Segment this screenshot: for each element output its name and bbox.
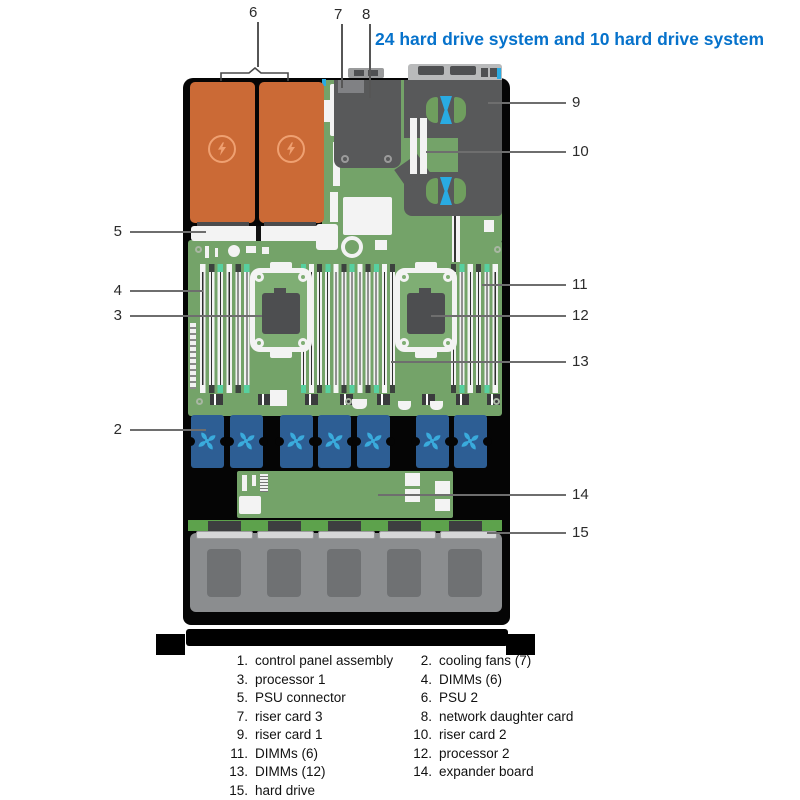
legend-item: 5.PSU connector <box>224 690 346 705</box>
board-connector <box>430 401 443 410</box>
legend-label: processor 1 <box>255 672 326 687</box>
callout-line <box>431 315 566 317</box>
legend-item: 6.PSU 2 <box>406 690 478 705</box>
legend-item: 13.DIMMs (12) <box>224 764 326 779</box>
riser-2-slot <box>420 118 427 174</box>
hard-drive-handle <box>196 531 253 539</box>
board-bit <box>215 248 218 257</box>
legend-label: network daughter card <box>439 709 573 724</box>
callout-line <box>488 102 566 104</box>
board-screw <box>196 398 203 405</box>
legend-item: 1.control panel assembly <box>224 653 393 668</box>
callout-5-psu-connector: 5 <box>94 223 122 240</box>
cooling-fan <box>318 415 351 468</box>
callout-line <box>130 231 206 233</box>
callout-10-riser2: 10 <box>572 143 589 160</box>
expander-bit <box>260 474 268 492</box>
callout-line <box>391 361 566 363</box>
legend-num: 5. <box>224 690 248 705</box>
board-connector <box>484 220 494 232</box>
riser-3-guide <box>330 192 338 222</box>
callout-6-bracket <box>220 67 290 82</box>
psu-2 <box>259 82 324 223</box>
fan-blades-icon <box>321 428 347 454</box>
callout-9-riser1: 9 <box>572 94 580 111</box>
processor-2 <box>407 293 445 334</box>
legend-num: 11. <box>224 746 248 761</box>
callout-6-psu2: 6 <box>249 4 257 21</box>
fan-blades-icon <box>233 428 259 454</box>
callout-7-riser3: 7 <box>334 6 342 23</box>
diagram-page: 24 hard drive system and 10 hard drive s… <box>0 0 800 800</box>
board-screw <box>345 398 352 405</box>
legend-label: PSU connector <box>255 690 346 705</box>
legend-item: 12.processor 2 <box>406 746 510 761</box>
callout-line <box>257 22 259 67</box>
riser-connector <box>426 178 438 204</box>
fan-blades-icon <box>419 428 445 454</box>
legend-item: 8.network daughter card <box>406 709 573 724</box>
fan-blades-icon <box>283 428 309 454</box>
fan-blades-icon <box>457 428 483 454</box>
fan-blades-icon <box>194 428 220 454</box>
callout-line <box>341 24 343 88</box>
fan-blades-icon <box>360 428 386 454</box>
expander-bit <box>435 499 450 511</box>
legend-num: 10. <box>406 727 432 742</box>
legend-num: 9. <box>224 727 248 742</box>
callout-line <box>426 151 566 153</box>
serial-port <box>450 66 476 75</box>
callout-line <box>487 532 566 534</box>
callout-4-dimms-left: 4 <box>94 282 122 299</box>
legend-num: 1. <box>224 653 248 668</box>
legend-num: 2. <box>406 653 432 668</box>
board-connector <box>398 401 411 410</box>
legend-item: 10.riser card 2 <box>406 727 507 742</box>
fan-connector <box>456 394 469 405</box>
board-bit <box>262 247 269 254</box>
hard-drive <box>448 549 482 597</box>
ndc-port <box>354 70 364 76</box>
expander-bit <box>252 475 256 486</box>
cooling-fan <box>230 415 263 468</box>
board-screw <box>493 398 500 405</box>
board-connector <box>375 240 387 250</box>
board-bit <box>246 246 256 253</box>
callout-line <box>130 290 203 292</box>
legend-label: control panel assembly <box>255 653 393 668</box>
callout-14-expander: 14 <box>572 486 589 503</box>
lightning-bolt-icon <box>277 135 305 163</box>
legend-num: 4. <box>406 672 432 687</box>
legend-label: PSU 2 <box>439 690 478 705</box>
vga-port <box>418 66 444 75</box>
processor-2-socket <box>395 268 457 352</box>
board-connector <box>352 399 367 409</box>
legend-num: 7. <box>224 709 248 724</box>
board-screw <box>195 246 202 253</box>
legend-num: 6. <box>406 690 432 705</box>
pcie-slot <box>452 216 460 262</box>
page-title: 24 hard drive system and 10 hard drive s… <box>375 29 764 50</box>
fan-connector <box>305 394 318 405</box>
fan-connector <box>210 394 223 405</box>
hard-drive-handle <box>318 531 375 539</box>
usb-port <box>490 68 497 77</box>
chassis-foot <box>506 634 535 655</box>
hard-drive <box>207 549 241 597</box>
edge-connector <box>190 323 196 389</box>
legend-num: 13. <box>224 764 248 779</box>
callout-3-processor1: 3 <box>94 307 122 324</box>
processor-1-socket <box>250 268 312 352</box>
hard-drive-handle <box>257 531 314 539</box>
legend-label: riser card 1 <box>255 727 323 742</box>
chassis-front-bar <box>186 629 508 646</box>
cooling-fan <box>357 415 390 468</box>
legend-num: 14. <box>406 764 432 779</box>
legend-label: DIMMs (6) <box>255 746 318 761</box>
callout-8-ndc: 8 <box>362 6 370 23</box>
callout-2-fans: 2 <box>94 421 122 438</box>
fan-connector <box>377 394 390 405</box>
callout-line <box>130 429 206 431</box>
dimm-bank-middle <box>301 264 398 393</box>
callout-15-hard-drive: 15 <box>572 524 589 541</box>
callout-line <box>378 494 566 496</box>
legend-label: DIMMs (12) <box>255 764 326 779</box>
legend-num: 12. <box>406 746 432 761</box>
callout-line <box>369 24 371 98</box>
legend-num: 3. <box>224 672 248 687</box>
expander-bit <box>405 473 420 486</box>
riser-connector <box>426 97 438 123</box>
board-bit <box>228 245 240 257</box>
expander-bit <box>242 475 247 491</box>
chassis-foot <box>156 634 185 655</box>
cooling-fan <box>191 415 224 468</box>
board-bit <box>205 246 209 258</box>
dimm-bank-left <box>200 264 253 393</box>
riser-2-slot <box>410 118 417 174</box>
riser-card-3 <box>324 100 332 122</box>
callout-12-processor2: 12 <box>572 307 589 324</box>
legend-num: 8. <box>406 709 432 724</box>
legend-item: 15.hard drive <box>224 783 315 798</box>
psu-1 <box>190 82 255 223</box>
callout-11-dimms-right: 11 <box>572 276 588 293</box>
legend-label: DIMMs (6) <box>439 672 502 687</box>
legend-item: 9.riser card 1 <box>224 727 323 742</box>
legend-item: 7.riser card 3 <box>224 709 323 724</box>
legend-label: riser card 2 <box>439 727 507 742</box>
legend-num: 15. <box>224 783 248 798</box>
chassis-corner-mark <box>497 68 501 79</box>
board-screw <box>494 246 501 253</box>
board-connector <box>270 390 287 406</box>
processor-1 <box>262 293 300 334</box>
legend-item: 11.DIMMs (6) <box>224 746 318 761</box>
hard-drive <box>267 549 301 597</box>
coin-battery <box>341 236 363 258</box>
legend-label: processor 2 <box>439 746 510 761</box>
legend-item: 2.cooling fans (7) <box>406 653 531 668</box>
cooling-fan <box>416 415 449 468</box>
legend-item: 14.expander board <box>406 764 534 779</box>
tpm-module <box>343 197 392 235</box>
callout-line <box>130 315 262 317</box>
legend-label: expander board <box>439 764 534 779</box>
hard-drive-handle <box>379 531 436 539</box>
legend-label: riser card 3 <box>255 709 323 724</box>
board-bracket <box>316 224 338 250</box>
legend-item: 3.processor 1 <box>224 672 326 687</box>
hard-drive <box>387 549 421 597</box>
cooling-fan <box>454 415 487 468</box>
lightning-bolt-icon <box>208 135 236 163</box>
legend-label: cooling fans (7) <box>439 653 531 668</box>
expander-bit <box>435 481 450 495</box>
ndc-screw <box>384 155 392 163</box>
expander-bit <box>239 496 261 514</box>
psu-connector-gap <box>256 226 261 241</box>
callout-line <box>482 284 566 286</box>
ndc-screw <box>341 155 349 163</box>
hard-drive <box>327 549 361 597</box>
cooling-fan <box>280 415 313 468</box>
usb-port <box>481 68 488 77</box>
callout-13-dimms-mid: 13 <box>572 353 589 370</box>
legend-label: hard drive <box>255 783 315 798</box>
riser-1-assembly <box>404 80 502 138</box>
legend-item: 4.DIMMs (6) <box>406 672 502 687</box>
